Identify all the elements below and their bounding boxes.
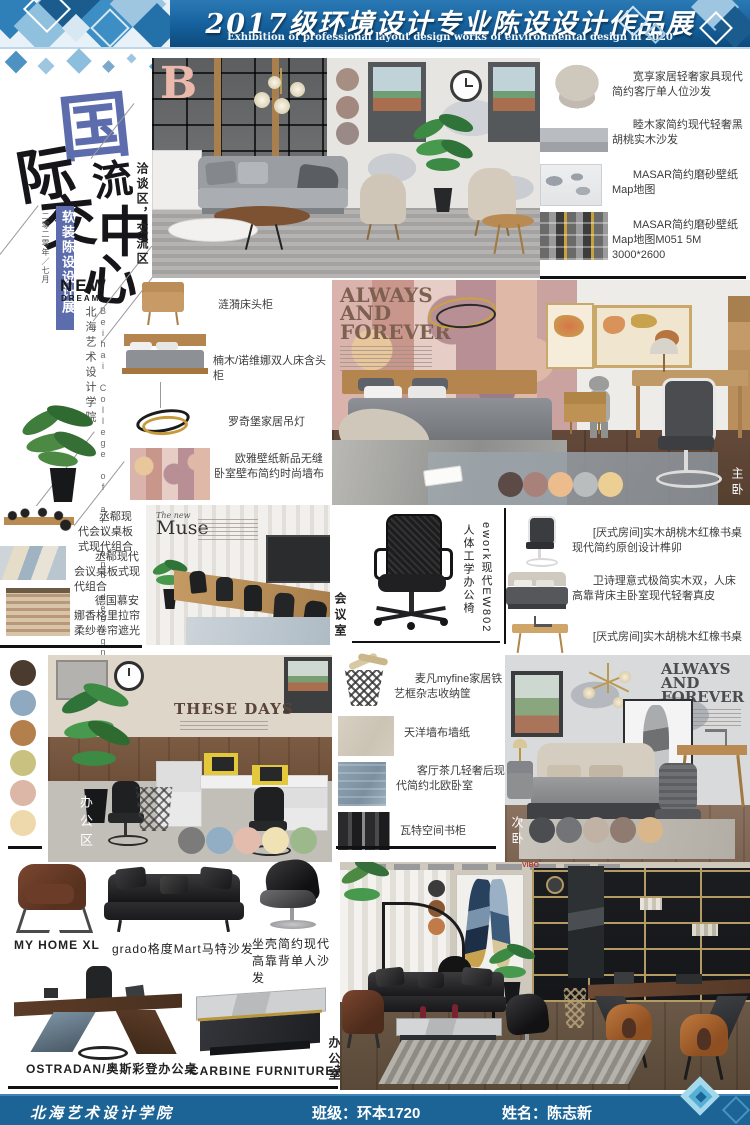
- chandelier-bulb: [254, 92, 270, 108]
- annotation-text: 瓦特空间书柜: [400, 824, 506, 839]
- sofa-leg: [117, 920, 122, 932]
- footer-band: 北海艺术设计学院 班级：环本1720 姓名：陈志新: [0, 1094, 750, 1125]
- chandelier-bulb: [290, 82, 305, 97]
- office-swatch-3: [234, 827, 261, 854]
- diagonal-line: [0, 205, 39, 277]
- annotation-text: MASAR简约磨砂壁纸Map地图: [612, 168, 746, 198]
- office-chair-white: [648, 378, 724, 490]
- nightstand-body: [564, 392, 606, 422]
- wall-clock: [450, 70, 482, 102]
- armchair-shell: [342, 990, 384, 1034]
- master-swatch-1: [498, 472, 523, 497]
- second-swatch-5: [637, 817, 663, 843]
- striped-rug: [378, 1040, 651, 1084]
- steel-leg: [16, 908, 57, 933]
- desk-lamp: [650, 338, 678, 372]
- bed-pillow: [514, 580, 532, 587]
- sofa-pillow: [205, 160, 237, 185]
- corner-mosaic-right: [690, 0, 750, 47]
- letter-b-decoration: B: [160, 58, 197, 109]
- annotation-text: 丞郗现代会议桌板式现代组合: [74, 550, 144, 595]
- map-blob: [631, 314, 657, 328]
- nightstand-leg: [175, 312, 179, 325]
- exhibition-poster: 2017级环境设计专业陈设设计作品展 Exhibition of profess…: [0, 0, 750, 1125]
- zone-second-label: 次卧: [509, 816, 526, 848]
- chandelier-arm: [607, 663, 609, 693]
- desk-top: [677, 745, 747, 755]
- thumb-sofa: [540, 120, 608, 160]
- thumb-leather-bed: [506, 572, 568, 612]
- plant-pot: [432, 188, 454, 212]
- task-chair-illustration: [368, 514, 458, 636]
- chair-seat: [526, 542, 554, 549]
- thumb-pendant-lamp: [134, 382, 188, 440]
- lamp-stem: [519, 748, 521, 761]
- desk-panel-leg: [30, 1012, 95, 1052]
- poster-line: FOREVER: [340, 323, 451, 341]
- annotation-text: [厌式房间]实木胡桃木红橡书桌: [572, 630, 744, 645]
- sofa-pillow: [375, 967, 405, 988]
- bed-duvet: [126, 350, 204, 370]
- zone-master-label: 主卧: [729, 467, 746, 499]
- header-band: 2017级环境设计专业陈设设计作品展 Exhibition of profess…: [0, 0, 750, 49]
- annotation-text: 麦凡myfine家居铁艺框杂志收纳筐: [394, 672, 506, 702]
- window-frame: [511, 671, 563, 737]
- chair-back: [254, 787, 284, 823]
- officecol-swatch-3: [10, 720, 36, 746]
- poster-fine-print: [340, 346, 432, 372]
- desk-leg: [517, 633, 522, 653]
- date-note-vertical: 二零二零年／七月: [40, 212, 51, 284]
- desk-items: [614, 972, 634, 984]
- exec-plant-2: [340, 862, 396, 954]
- officecol-swatch-2: [10, 690, 36, 716]
- master-swatch-2: [523, 472, 548, 497]
- meeting-rug: [186, 617, 330, 645]
- executive-office-photo: VIBO: [340, 862, 750, 1090]
- thumb-writing-desk: [512, 616, 568, 656]
- meeting-room-photo: The new Muse: [146, 505, 330, 645]
- chair-back: [662, 378, 716, 444]
- armchair-leg: [347, 1034, 352, 1048]
- monitor: [212, 757, 234, 771]
- brown-leather-armchair: [340, 990, 388, 1052]
- window-view: [493, 67, 535, 111]
- bed-pillow: [130, 342, 152, 350]
- diamond-shape: [127, 54, 137, 64]
- annotation-text: 欧雅壁纸新品无缝卧室壁布简约时尚墙布: [214, 452, 332, 482]
- bedside-table-grey: [507, 761, 533, 799]
- office-plant: [56, 685, 134, 845]
- annotation-text: 德国慕安娜香格里拉帘柔纱卷帘遮光: [74, 594, 144, 639]
- master-swatch-5: [598, 472, 623, 497]
- desk-chair-back: [86, 966, 112, 1000]
- annotation-text: 睦木家简约现代轻奢黑胡桃实木沙发: [612, 118, 746, 148]
- divider-line: [352, 641, 500, 643]
- chair-caster: [440, 618, 448, 626]
- clock-hand: [466, 85, 473, 87]
- chair-caster: [407, 622, 415, 630]
- sofa-pillow: [418, 972, 444, 988]
- lamp-cord: [160, 382, 161, 408]
- thumb-beige-fabric: [338, 716, 394, 756]
- footer-school-name: 北海艺术设计学院: [30, 1102, 174, 1123]
- thumb-arch-wallpaper: [130, 448, 210, 500]
- thumb-world-map: [540, 164, 602, 206]
- window-view: [373, 67, 421, 111]
- divider-line: [540, 276, 746, 279]
- thumb-armchair: [548, 64, 606, 118]
- office-swatch-1: [178, 827, 205, 854]
- annotation-text: [厌式房间]实木胡桃木红橡书桌现代简约原创设计榫卯: [572, 526, 744, 556]
- chrome-base: [270, 920, 316, 929]
- office-area-photo: THESE DAYS: [48, 655, 332, 862]
- lamp-stem: [663, 354, 665, 372]
- chandelier-bulb: [583, 687, 595, 699]
- chair-seat-edge: [260, 890, 316, 908]
- task-chair-panel: ework现代EW802 人体工学办公椅: [346, 508, 502, 640]
- map-blob: [554, 315, 584, 337]
- nightstand-leg: [147, 312, 151, 325]
- wine-glass: [420, 1006, 426, 1018]
- sofa-seat: [198, 188, 348, 208]
- desk-lamp-mini: [534, 616, 552, 627]
- officecol-swatch-1: [10, 660, 36, 686]
- monitor: [260, 767, 282, 781]
- office-desk-cluster: [156, 751, 326, 831]
- zone-negotiation-label: 洽谈区，交流区: [134, 162, 151, 267]
- living-swatch-3: [336, 122, 359, 145]
- chandelier-bulb: [274, 98, 290, 114]
- annotation-text: 卫诗理意式极简实木双，人床高靠背床主卧室现代轻奢真皮: [572, 574, 744, 604]
- living-room-photo: B: [152, 58, 540, 278]
- annotation-text: 客厅茶几轻奢后现代简约北欧卧室: [396, 764, 508, 794]
- office-swatch-4: [262, 827, 289, 854]
- desk-leg: [736, 755, 744, 807]
- desk-leg: [559, 633, 564, 653]
- conference-chair: [216, 577, 233, 601]
- chair-base: [656, 470, 722, 488]
- master-swatch-3: [548, 472, 573, 497]
- leaf-shape: [72, 751, 116, 766]
- desk-wood-leg: [115, 1010, 176, 1054]
- basket-mesh: [344, 670, 384, 706]
- bed-pillow: [536, 580, 554, 587]
- armchair-leg: [375, 1034, 380, 1048]
- conference-chair: [244, 585, 262, 611]
- chandelier-illustration: [252, 68, 312, 118]
- desk-leg: [738, 386, 742, 438]
- armchair-cushion: [26, 884, 74, 904]
- product-label: 坐壳简约现代高靠背单人沙发: [252, 936, 332, 987]
- lamp-shade: [513, 739, 527, 748]
- armchair-leg: [366, 224, 371, 240]
- chandelier-bulb: [268, 76, 281, 89]
- chair-shell: [504, 992, 550, 1036]
- steel-leg: [52, 908, 93, 933]
- nightstand-leg: [570, 422, 572, 434]
- leaf-shape: [426, 158, 460, 171]
- chair-desc-label: 人体工学办公椅: [460, 524, 476, 615]
- officecol-swatch-4: [10, 750, 36, 776]
- poster-fine-print: [180, 721, 268, 731]
- leaf-shape: [37, 449, 79, 468]
- living-swatch-2: [336, 96, 359, 119]
- annotation-text: 涟漪床头柜: [218, 298, 328, 313]
- sofa-pillow: [115, 866, 147, 889]
- armchair-shell: [360, 174, 406, 224]
- divider-line: [8, 846, 42, 849]
- window-view: [515, 675, 559, 733]
- brown-armchair-product: [10, 864, 96, 934]
- sofa-pillow: [199, 866, 233, 889]
- armchair-leg: [394, 224, 399, 240]
- zone-office-area-label: 办公区: [76, 795, 95, 852]
- divider-line: [336, 846, 496, 849]
- footer-name-text: 姓名：陈志新: [502, 1102, 592, 1123]
- side-table-wood: [482, 214, 534, 228]
- corner-mosaic-left: [0, 0, 170, 47]
- plant-illustration: [12, 408, 112, 508]
- chandelier-bulb: [619, 671, 631, 683]
- coffee-table-white: [168, 218, 258, 242]
- chair-leg: [716, 1056, 724, 1080]
- thumb-office-chair: [520, 516, 560, 564]
- leaf-shape: [344, 888, 380, 901]
- office-swatch-5: [290, 827, 317, 854]
- these-days-poster-text: THESE DAYS: [174, 703, 294, 717]
- cognac-chair: [676, 1014, 732, 1086]
- wire-basket: [134, 787, 174, 831]
- white-cabinet: [152, 150, 202, 210]
- gold-table-lamp: [513, 739, 527, 761]
- second-swatch-1: [529, 817, 555, 843]
- divider-line: [0, 645, 142, 648]
- black-sofa-product: [104, 868, 244, 932]
- thumb-double-bed: [120, 334, 210, 378]
- second-swatch-4: [610, 817, 636, 843]
- desk-lamp-mini: [705, 729, 727, 746]
- chair-back: [659, 763, 697, 811]
- wine-glass: [452, 1004, 458, 1018]
- thumb-blue-fabric: [338, 762, 386, 806]
- bedside-table: [564, 392, 606, 434]
- chair-seat: [378, 574, 446, 592]
- annotation-text: 罗奇堡家居吊灯: [228, 415, 332, 430]
- nightstand-leg: [598, 422, 600, 434]
- chair-base: [78, 1046, 128, 1060]
- bed-frame: [122, 368, 208, 374]
- thumb-mosaic-tiles: [540, 212, 608, 260]
- sofa-seat: [104, 902, 244, 920]
- marble-top: [396, 1018, 502, 1036]
- living-swatch-1: [336, 68, 359, 91]
- new-word: NEW: [60, 276, 109, 296]
- chair-model-label: ework现代EW802: [478, 522, 494, 633]
- divider-line: [8, 1086, 338, 1089]
- sofa-leg: [225, 920, 230, 932]
- officecol-swatch-5: [10, 780, 36, 806]
- sofa-pillow: [461, 967, 492, 988]
- armchair-leg: [474, 220, 479, 236]
- thumb-dark-bookcase: [338, 812, 390, 850]
- annotation-text: 楠木/诺维娜双人床含头柜: [213, 354, 331, 384]
- plant-pot: [48, 468, 78, 502]
- bed-frame: [508, 604, 566, 609]
- window-view: [288, 661, 328, 691]
- sofa-pillow: [160, 876, 188, 894]
- desk-items: [44, 988, 58, 998]
- coffee-table-product: [196, 992, 324, 1054]
- second-swatch-2: [556, 817, 582, 843]
- annotation-text: 丞郗现代会议桌板式现代组合: [78, 510, 142, 555]
- chair-back: [386, 514, 442, 580]
- desk-items: [676, 974, 702, 984]
- chair-caster: [374, 618, 382, 626]
- tv-screen: [266, 535, 330, 583]
- nightstand-body: [142, 282, 184, 312]
- figure-head: [589, 376, 609, 391]
- window-frame: [488, 62, 540, 142]
- bed-duvet: [506, 587, 568, 605]
- chair-post: [684, 450, 688, 472]
- monstera-plant: [410, 116, 476, 216]
- chair-cutout: [622, 1018, 636, 1038]
- lamp-shade: [650, 338, 678, 354]
- executive-desk-product: [14, 966, 182, 1058]
- chair-post: [538, 549, 541, 558]
- sofa-pillow: [238, 162, 268, 184]
- dream-word: DREAM: [61, 294, 100, 303]
- swivel-chair-product: [252, 860, 332, 932]
- shelf-books: [692, 924, 718, 936]
- thumb-meeting-table: [4, 506, 74, 538]
- chair-cutout: [697, 1028, 711, 1050]
- second-swatch-3: [583, 817, 609, 843]
- poster-fine-print: [198, 519, 258, 541]
- exhibition-banner: 软装陈设设计展: [56, 206, 74, 330]
- office-swatch-2: [206, 827, 233, 854]
- officecol-swatch-6: [10, 810, 36, 836]
- product-label: grado格度Mart马特沙发: [112, 940, 254, 957]
- map-blob: [603, 316, 625, 334]
- thumb-magazine-basket: [342, 660, 386, 708]
- thumb-roller-blind: [6, 588, 70, 636]
- diamond-shape: [5, 51, 28, 74]
- annotation-text: 天洋墙布墙纸: [404, 726, 504, 741]
- shelf-books: [640, 898, 662, 910]
- master-swatch-4: [573, 472, 598, 497]
- exec-swatch-1: [428, 880, 445, 897]
- beige-armchair: [356, 174, 410, 240]
- master-bedroom-photo: ALWAYS AND FOREVER: [332, 280, 750, 505]
- product-label: OSTRADAN/奥斯彩登办公桌: [26, 1060, 197, 1077]
- second-bedroom-photo: ALWAYS AND FOREVER: [505, 655, 750, 862]
- thumb-abstract-rug: [0, 546, 66, 580]
- product-label: MY HOME XL: [14, 938, 100, 952]
- clock-hand: [128, 668, 130, 676]
- desk-leg: [636, 386, 640, 438]
- chair-base: [526, 558, 558, 567]
- annotation-text: 宽享家居轻奢家具现代简约客厅单人位沙发: [612, 70, 746, 100]
- chair-post: [409, 592, 414, 612]
- poster-subtitle: Exhibition of professional layout design…: [180, 32, 720, 43]
- annotation-text: MASAR简约磨砂壁纸Map地图M051 5M 3000*2600: [612, 218, 746, 263]
- marble-slab-panel: [568, 866, 604, 978]
- bed-pillow: [156, 342, 178, 350]
- chair-leg: [684, 1056, 692, 1080]
- conference-chair: [189, 570, 207, 594]
- thumb-nightstand: [140, 280, 186, 326]
- shelf-globe: [546, 876, 564, 894]
- china-map-frame: [546, 303, 594, 369]
- footer-class-text: 班级：环本1720: [312, 1102, 420, 1123]
- chair-seat: [658, 436, 714, 450]
